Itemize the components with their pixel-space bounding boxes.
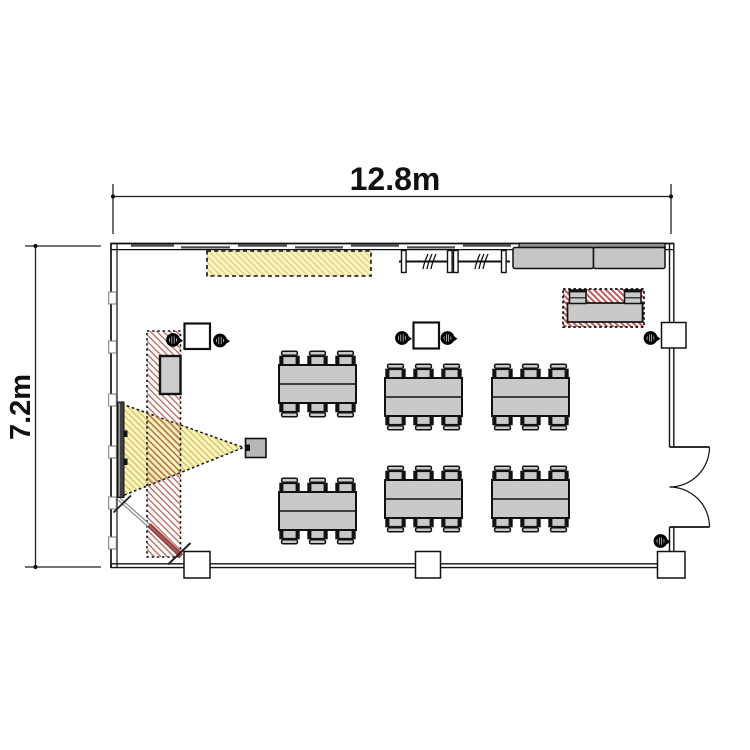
svg-text:7.2m: 7.2m: [5, 374, 37, 440]
svg-text:12.8m: 12.8m: [350, 161, 441, 197]
